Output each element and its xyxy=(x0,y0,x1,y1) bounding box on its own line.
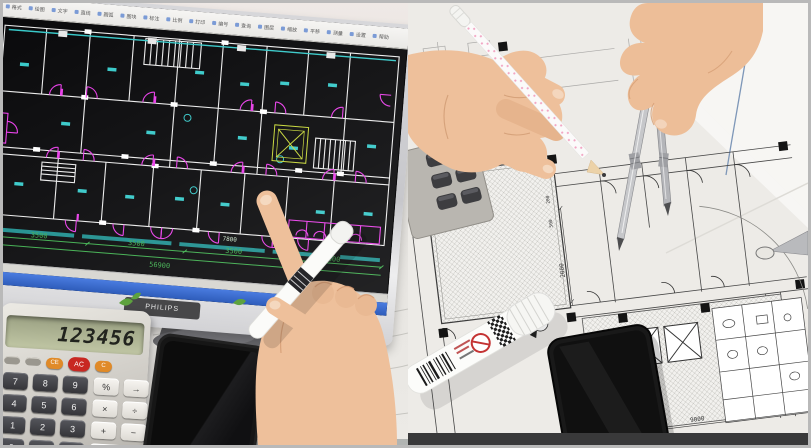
dim-500: 500 xyxy=(548,219,555,228)
bathroom-fixtures xyxy=(712,298,808,423)
blueprint-scene: 2400 9000 2000 500 200 B xyxy=(408,3,808,445)
plant-leaf xyxy=(119,293,246,306)
pencil-tip xyxy=(602,173,606,177)
pointing-hand xyxy=(3,3,408,445)
dim-200: 200 xyxy=(545,195,552,204)
desk-edge xyxy=(408,433,808,445)
right-photo-blueprint-drafting: 2400 9000 2000 500 200 B xyxy=(408,3,808,445)
photo-collage: 格式绘图文字直线圆弧图块标注比例打印编号查询图层缩放平移测量设置帮助 xyxy=(0,0,811,448)
left-photo-cad-workstation: 格式绘图文字直线圆弧图块标注比例打印编号查询图层缩放平移测量设置帮助 xyxy=(3,3,408,445)
